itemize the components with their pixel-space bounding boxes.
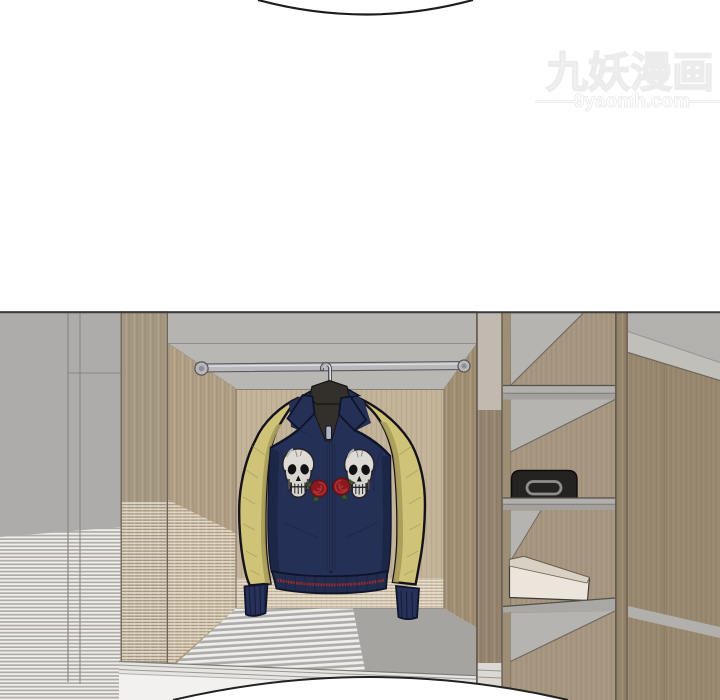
svg-text:九妖漫画: 九妖漫画 <box>546 49 714 96</box>
svg-text:——9yaomh.com——: ——9yaomh.com—— <box>536 91 720 112</box>
